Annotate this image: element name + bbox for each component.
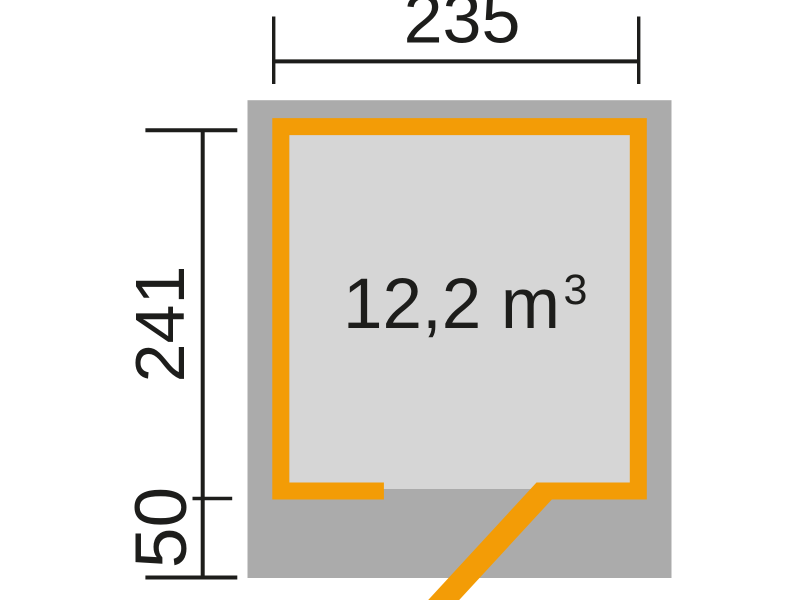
svg-text:12,2 m: 12,2 m — [343, 265, 560, 344]
svg-text:241: 241 — [121, 266, 199, 383]
svg-text:235: 235 — [404, 0, 521, 58]
svg-text:3: 3 — [564, 266, 588, 314]
svg-text:50: 50 — [121, 487, 202, 568]
